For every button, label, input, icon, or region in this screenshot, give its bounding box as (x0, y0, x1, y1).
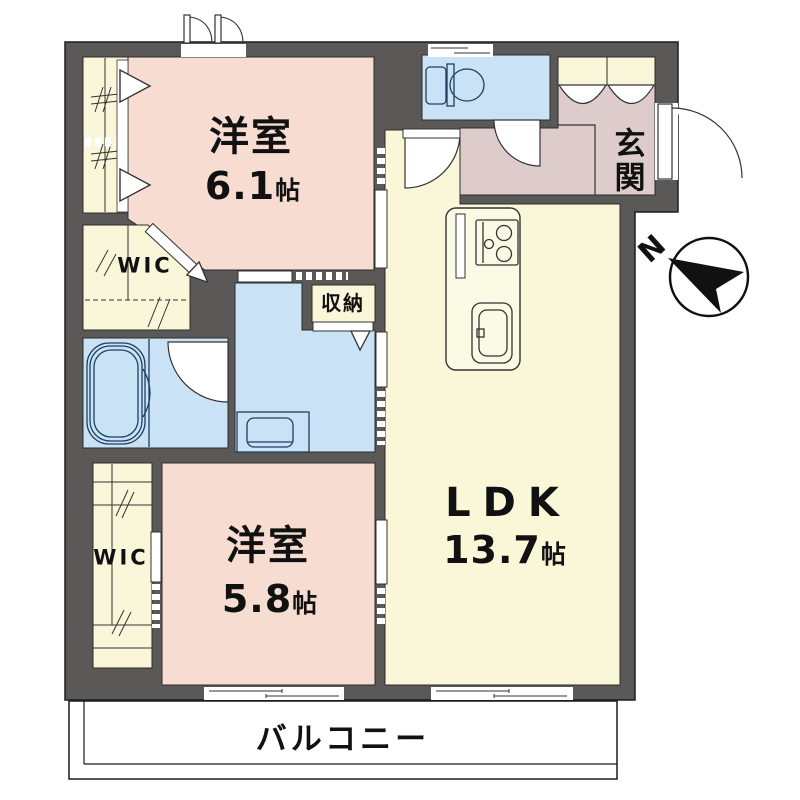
bedroom1-size-unit: 帖 (275, 176, 301, 205)
storage-label: 収納 (321, 293, 365, 313)
wic2-label: WIC (93, 548, 148, 569)
floorplan-drawing (0, 0, 800, 800)
bedroom2-name: 洋室 (226, 526, 310, 566)
bedroom1-casement-windows (181, 15, 246, 57)
wic1-label: WIC (117, 256, 172, 277)
floorplan-canvas: 洋室 6.1帖 WIC 収納 玄関 LDK 13.7帖 洋室 5.8帖 WIC … (0, 0, 800, 800)
north-compass (668, 238, 748, 316)
ldk-size: 13.7帖 (443, 531, 567, 569)
bedroom2-balcony-window (204, 687, 344, 700)
bedroom2-size-unit: 帖 (292, 589, 318, 618)
toilet-area (422, 55, 550, 120)
entrance-label: 玄関 (611, 127, 642, 195)
bedroom1-name: 洋室 (209, 117, 293, 157)
ldk-balcony-window (431, 687, 573, 700)
bedroom1-size: 6.1帖 (205, 167, 301, 205)
ldk-name: LDK (445, 483, 571, 523)
bedroom1-size-value: 6.1 (205, 164, 275, 208)
front-door (655, 103, 742, 180)
ldk-size-unit: 帖 (541, 540, 567, 569)
bedroom2-size-value: 5.8 (222, 577, 292, 621)
toilet-window (428, 44, 493, 57)
bedroom2-area (162, 463, 375, 685)
bedroom2-size: 5.8帖 (222, 580, 318, 618)
ldk-size-value: 13.7 (443, 528, 541, 572)
balcony-label: バルコニー (256, 725, 430, 756)
